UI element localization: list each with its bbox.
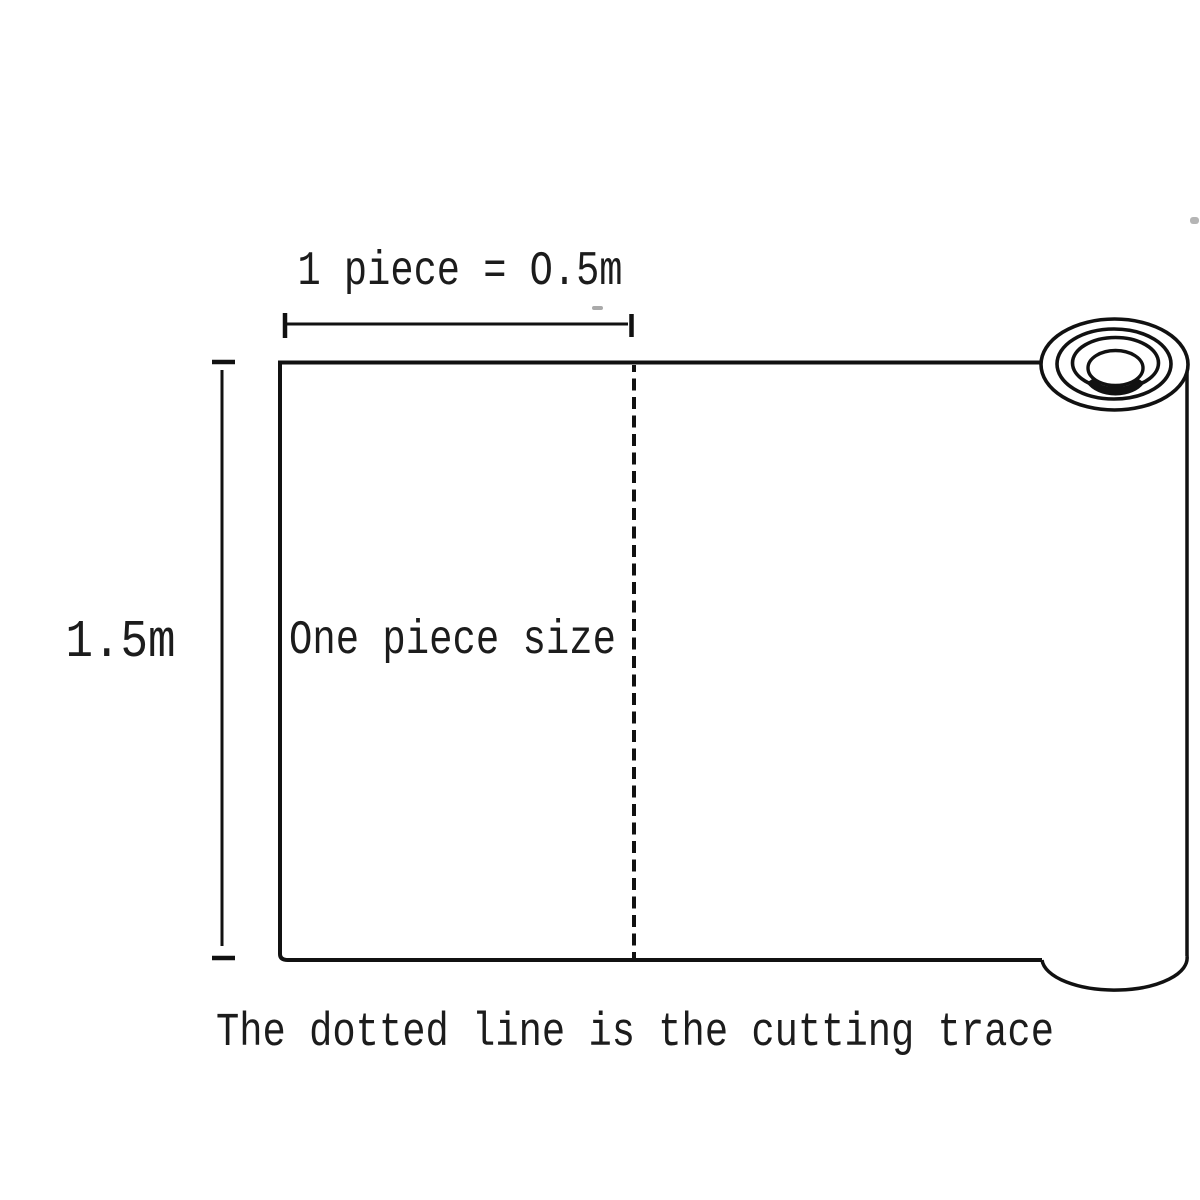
svg-text:1 piece = O.5m: 1 piece = O.5m <box>298 245 623 299</box>
svg-text:The dotted line is the cutting: The dotted line is the cutting trace <box>216 1007 1054 1060</box>
svg-text:One piece size: One piece size <box>289 614 616 668</box>
svg-text:1.5m: 1.5m <box>66 612 176 672</box>
